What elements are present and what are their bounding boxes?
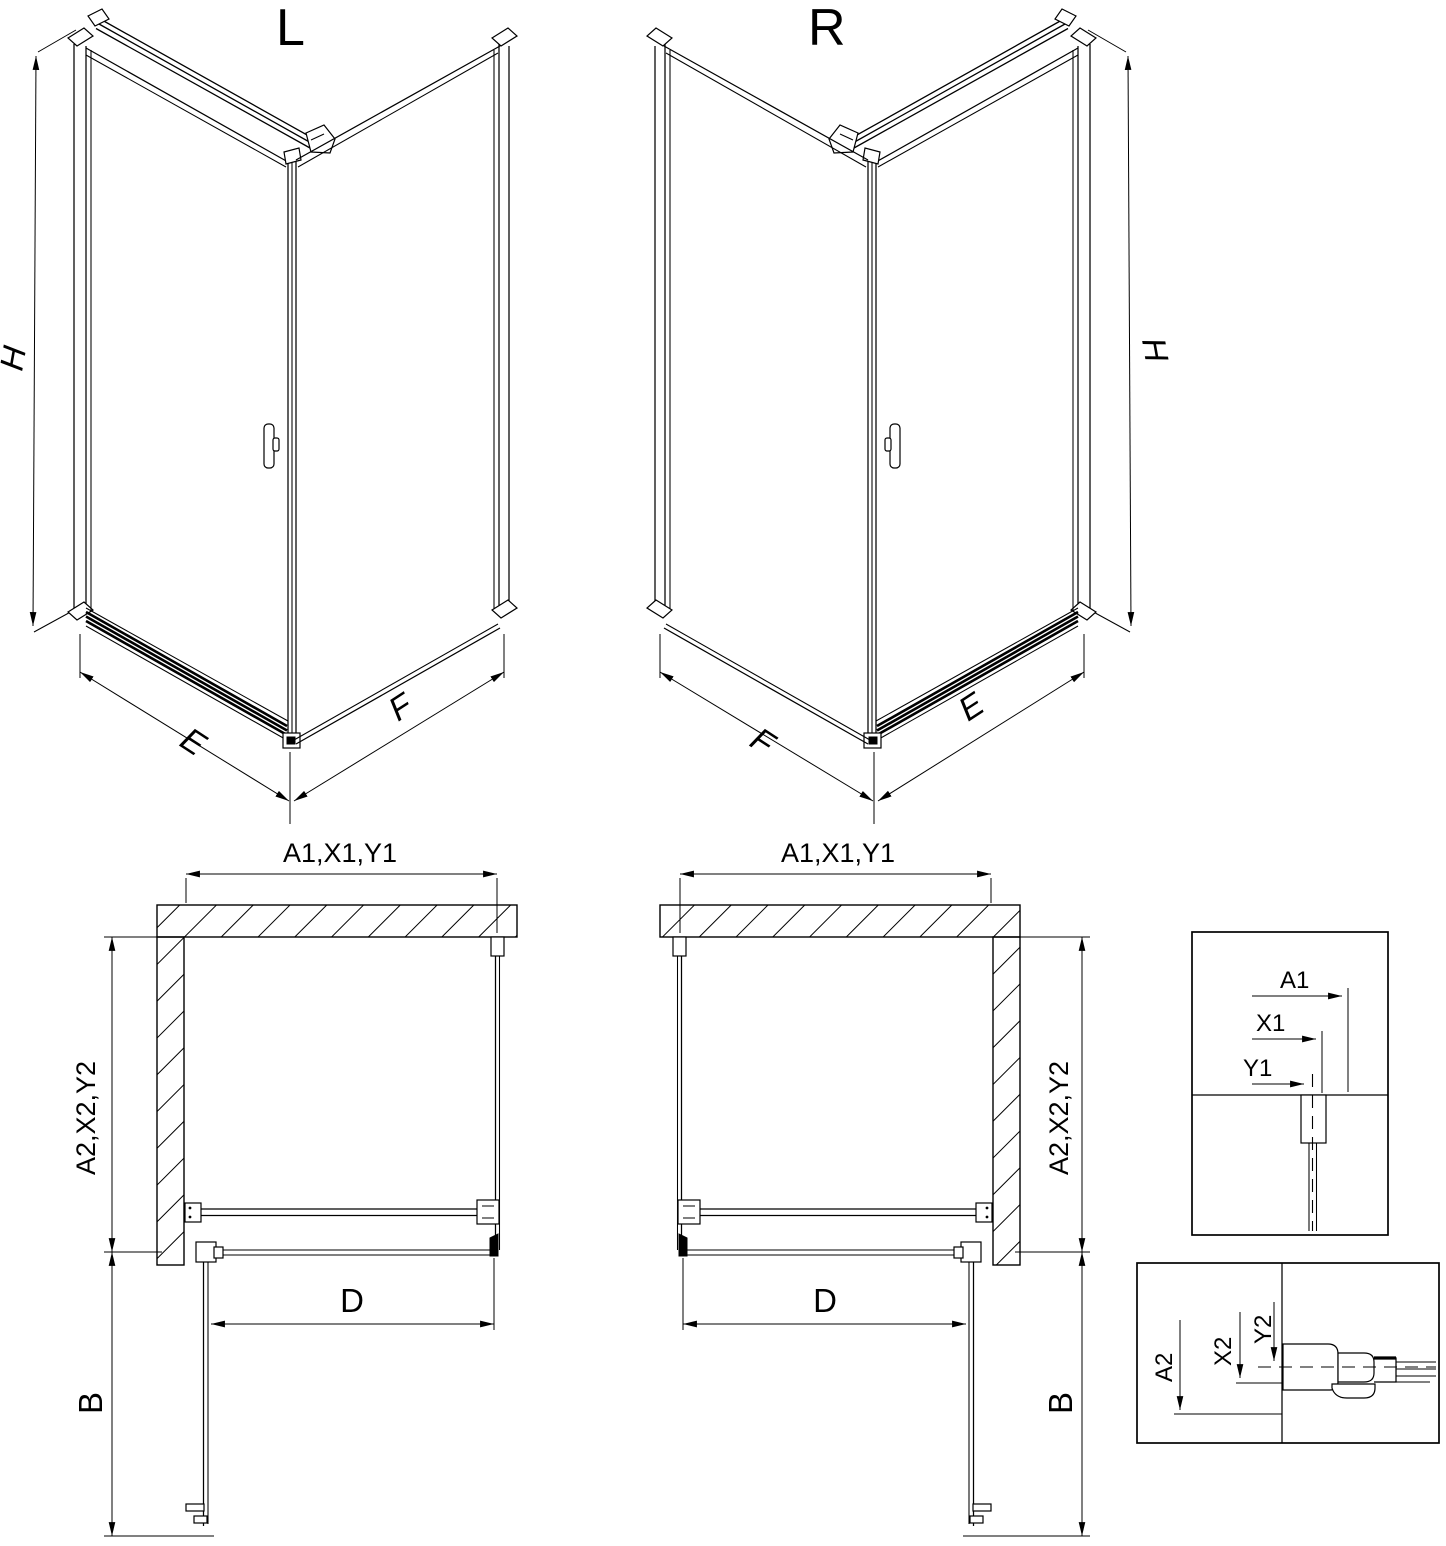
door-handle <box>264 424 279 468</box>
right-view-h-dimension: H <box>1088 30 1176 632</box>
right-plan-view: A1,X1,Y1 A2,X2,Y2 <box>660 838 1090 1536</box>
door-handle-plan <box>973 1504 991 1511</box>
support-bar <box>829 9 1076 153</box>
panel-bottom-cap <box>492 600 517 618</box>
y1-label: Y1 <box>1243 1055 1272 1082</box>
extension-line <box>38 30 76 52</box>
wall-profile-section <box>1301 1095 1326 1143</box>
support-bar-plan <box>185 1200 499 1224</box>
h-dim-label: H <box>1135 335 1176 365</box>
a2-dim-label: A2,X2,Y2 <box>1044 1061 1074 1175</box>
a2-dimension: A2,X2,Y2 <box>71 937 162 1252</box>
panel-top-cap <box>647 28 672 46</box>
bar-glass-clamp <box>678 1200 700 1224</box>
right-view-label: R <box>808 0 846 57</box>
b-dimension: B <box>963 1252 1090 1536</box>
extension-line <box>1088 30 1126 52</box>
side-wall <box>157 937 184 1265</box>
door-wall-profile <box>68 28 93 620</box>
profile-top-cap <box>68 28 93 46</box>
open-door-plan <box>969 1262 991 1526</box>
d-dim-label: D <box>813 1282 837 1319</box>
back-wall <box>157 905 517 937</box>
shower-enclosure-diagram: L H <box>0 0 1446 1546</box>
post-bottom-fitting-detail <box>869 737 877 744</box>
h-dim-line <box>1128 56 1131 626</box>
post-top-cap <box>863 148 880 164</box>
hinge-section <box>1283 1344 1436 1398</box>
panel-wall-fitting <box>673 937 686 956</box>
d-dimension: D <box>683 1258 966 1330</box>
left-view-label: L <box>276 0 305 57</box>
left-plan-view: A1,X1,Y1 A2,X2,Y2 <box>71 838 517 1536</box>
support-bar-wall-cap <box>88 9 109 26</box>
door-wall-profile <box>1071 28 1096 620</box>
d-dim-label: D <box>340 1282 364 1319</box>
profile-top-cap <box>1071 28 1096 46</box>
door-panel <box>86 48 288 739</box>
a2-dimension: A2,X2,Y2 <box>1015 937 1090 1252</box>
support-bar-plan <box>678 1200 992 1224</box>
bar-glass-clamp <box>477 1200 499 1224</box>
e-dim-line <box>878 672 1084 801</box>
left-isometric-view: L H <box>0 0 517 824</box>
door-panel <box>876 48 1078 739</box>
bar-wall-bracket <box>976 1203 992 1222</box>
door-hinge-bracket <box>961 1242 981 1262</box>
left-view-h-dimension: H <box>0 30 76 632</box>
e-dim-label: E <box>174 720 213 764</box>
panel-bottom-cap <box>647 600 672 618</box>
a2-label: A2 <box>1151 1353 1178 1382</box>
threshold-plan <box>679 1234 981 1262</box>
b-dim-label: B <box>72 1392 109 1414</box>
detail-bottom-hinge: A2 X2 Y2 <box>1137 1263 1439 1443</box>
h-dim-label: H <box>0 343 33 373</box>
h-dim-line <box>33 56 36 626</box>
a1-dim-label: A1,X1,Y1 <box>283 838 397 868</box>
y2-label: Y2 <box>1250 1315 1277 1344</box>
threshold-plan <box>196 1234 498 1262</box>
magnet-profile <box>490 1234 498 1256</box>
x2-label: X2 <box>1210 1337 1237 1366</box>
hinge-foot <box>1332 1384 1375 1398</box>
e-dim-label: E <box>952 684 991 728</box>
open-door-plan <box>186 1262 208 1526</box>
door-handle <box>885 424 900 468</box>
door-hinge-bracket <box>196 1242 216 1262</box>
support-bar-wall-cap <box>1055 9 1076 26</box>
corner-post <box>283 148 301 748</box>
back-wall <box>660 905 1020 937</box>
bar-wall-bracket <box>185 1203 201 1222</box>
technical-drawing-page: L H <box>0 0 1446 1546</box>
x1-label: X1 <box>1256 1010 1285 1037</box>
post-bottom-fitting-detail <box>287 737 295 744</box>
corner-post <box>863 148 881 748</box>
b-dimension: B <box>72 1252 214 1536</box>
right-isometric-view: R H <box>647 0 1176 824</box>
glass-plates <box>1396 1362 1436 1382</box>
d-dimension: D <box>211 1258 494 1330</box>
detail-top-profile: A1 X1 Y1 <box>1192 932 1388 1235</box>
door-handle-plan <box>186 1504 204 1511</box>
a1-dim-label: A1,X1,Y1 <box>781 838 895 868</box>
magnet-profile <box>679 1234 687 1256</box>
side-wall <box>993 937 1020 1265</box>
a2-dim-label: A2,X2,Y2 <box>71 1061 101 1175</box>
b-dim-label: B <box>1042 1392 1079 1414</box>
clamp-plate <box>1374 1358 1396 1382</box>
post-top-cap <box>284 148 301 164</box>
panel-top-cap <box>492 28 517 46</box>
panel-wall-fitting <box>491 937 504 956</box>
a1-label: A1 <box>1280 967 1309 994</box>
